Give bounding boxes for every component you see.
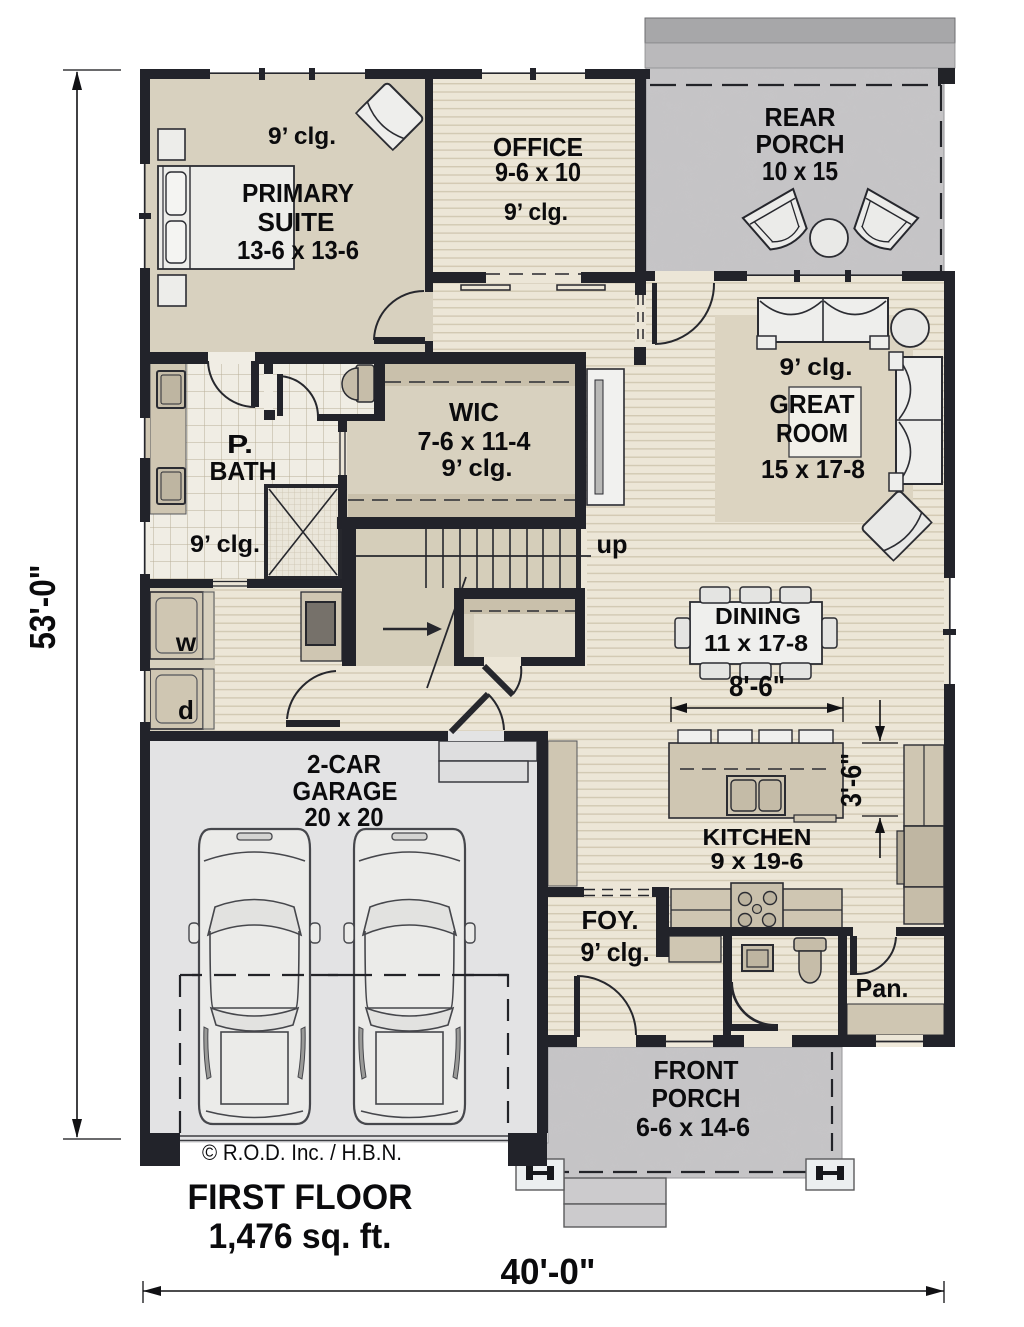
svg-text:P.: P.	[227, 429, 253, 459]
svg-text:PORCH: PORCH	[652, 1083, 741, 1113]
svg-text:GREAT: GREAT	[770, 389, 855, 419]
svg-text:8'-6": 8'-6"	[729, 671, 785, 703]
svg-text:9’ clg.: 9’ clg.	[268, 123, 336, 150]
svg-text:15 x 17-8: 15 x 17-8	[761, 454, 865, 484]
svg-text:BATH: BATH	[210, 456, 277, 486]
svg-text:9 x 19-6: 9 x 19-6	[711, 848, 804, 874]
svg-text:3'-6": 3'-6"	[836, 753, 868, 807]
svg-text:WIC: WIC	[449, 397, 499, 427]
svg-text:9’ clg.: 9’ clg.	[442, 455, 513, 482]
svg-text:d: d	[178, 695, 194, 725]
svg-text:REAR: REAR	[765, 102, 836, 132]
svg-text:2-CAR: 2-CAR	[307, 749, 381, 779]
svg-text:PRIMARY: PRIMARY	[242, 178, 354, 208]
svg-text:DINING: DINING	[715, 603, 801, 629]
svg-text:9’ clg.: 9’ clg.	[780, 354, 853, 381]
svg-text:ROOM: ROOM	[776, 418, 848, 448]
svg-text:PORCH: PORCH	[756, 129, 845, 159]
svg-text:FIRST FLOOR: FIRST FLOOR	[188, 1178, 413, 1217]
svg-text:10 x 15: 10 x 15	[762, 156, 838, 186]
svg-text:9’ clg.: 9’ clg.	[504, 199, 568, 226]
svg-text:13-6 x 13-6: 13-6 x 13-6	[237, 235, 359, 265]
svg-text:KITCHEN: KITCHEN	[703, 824, 812, 850]
svg-text:9-6 x 10: 9-6 x 10	[495, 157, 581, 187]
svg-text:up: up	[597, 529, 628, 559]
svg-text:1,476 sq. ft.: 1,476 sq. ft.	[209, 1217, 392, 1256]
svg-text:9’ clg.: 9’ clg.	[581, 937, 650, 967]
svg-text:© R.O.D. Inc. / H.B.N.: © R.O.D. Inc. / H.B.N.	[202, 1140, 402, 1165]
svg-text:40'-0": 40'-0"	[501, 1251, 596, 1292]
svg-text:Pan.: Pan.	[856, 973, 909, 1003]
svg-text:w: w	[175, 627, 197, 657]
svg-text:9’ clg.: 9’ clg.	[190, 531, 260, 558]
svg-text:FOY.: FOY.	[582, 905, 639, 935]
svg-text:6-6 x 14-6: 6-6 x 14-6	[636, 1112, 750, 1142]
svg-text:20 x 20: 20 x 20	[305, 802, 384, 832]
svg-text:SUITE: SUITE	[258, 207, 335, 237]
svg-text:11 x 17-8: 11 x 17-8	[704, 630, 808, 656]
svg-text:53'-0": 53'-0"	[22, 565, 63, 650]
svg-text:FRONT: FRONT	[654, 1055, 739, 1085]
svg-text:7-6 x 11-4: 7-6 x 11-4	[418, 426, 532, 456]
